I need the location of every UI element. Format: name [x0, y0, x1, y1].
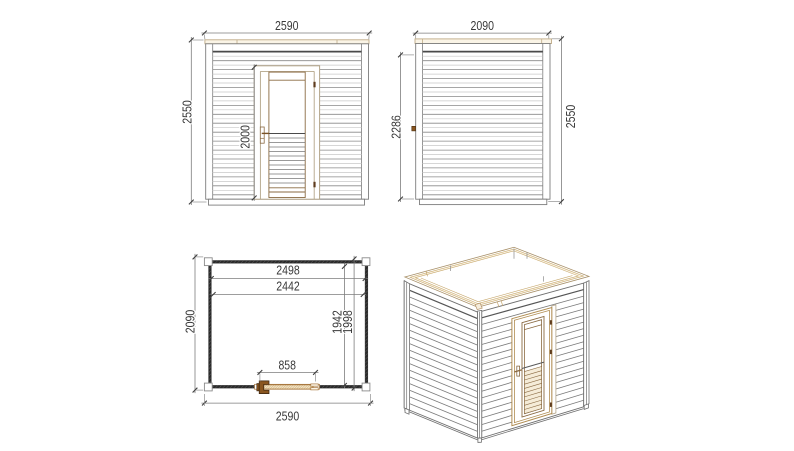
svg-text:2550: 2550 — [563, 105, 578, 129]
svg-text:1998: 1998 — [340, 310, 355, 334]
svg-text:2550: 2550 — [179, 100, 194, 124]
svg-text:2286: 2286 — [389, 115, 404, 139]
svg-text:2090: 2090 — [183, 310, 198, 334]
svg-text:858: 858 — [278, 357, 296, 372]
svg-text:2590: 2590 — [276, 409, 300, 424]
svg-text:2442: 2442 — [276, 279, 300, 294]
svg-text:2590: 2590 — [275, 18, 299, 33]
svg-text:2000: 2000 — [238, 125, 253, 149]
svg-text:2090: 2090 — [470, 18, 494, 33]
svg-text:2498: 2498 — [276, 263, 300, 278]
